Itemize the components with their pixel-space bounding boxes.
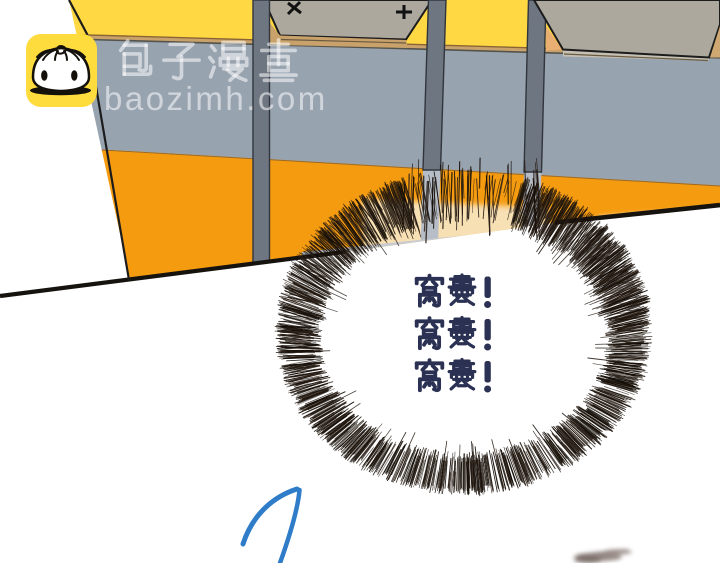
svg-text:baozimh.com: baozimh.com	[104, 80, 328, 117]
